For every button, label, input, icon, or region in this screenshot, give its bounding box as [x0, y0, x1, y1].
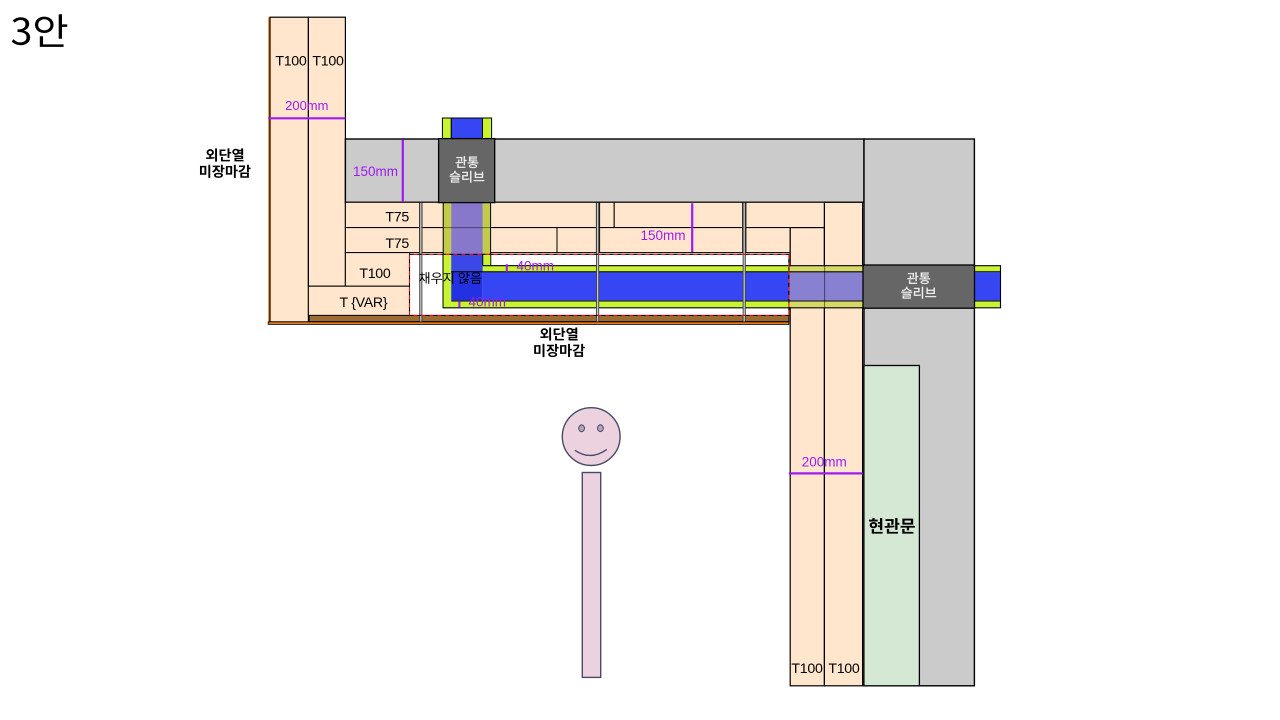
- svg-text:40mm: 40mm: [469, 295, 507, 310]
- svg-text:T75: T75: [385, 210, 409, 226]
- svg-text:T100: T100: [828, 661, 860, 677]
- svg-text:150mm: 150mm: [640, 228, 685, 243]
- svg-text:T100: T100: [791, 661, 823, 677]
- svg-text:T {VAR}: T {VAR}: [339, 295, 387, 311]
- svg-text:200mm: 200mm: [285, 98, 328, 113]
- svg-text:T100: T100: [275, 53, 307, 69]
- svg-text:150mm: 150mm: [353, 164, 398, 179]
- svg-text:T100: T100: [359, 266, 391, 282]
- svg-text:200mm: 200mm: [802, 455, 847, 470]
- svg-text:T100: T100: [312, 53, 344, 69]
- svg-text:40mm: 40mm: [517, 259, 555, 274]
- svg-text:T75: T75: [385, 236, 409, 252]
